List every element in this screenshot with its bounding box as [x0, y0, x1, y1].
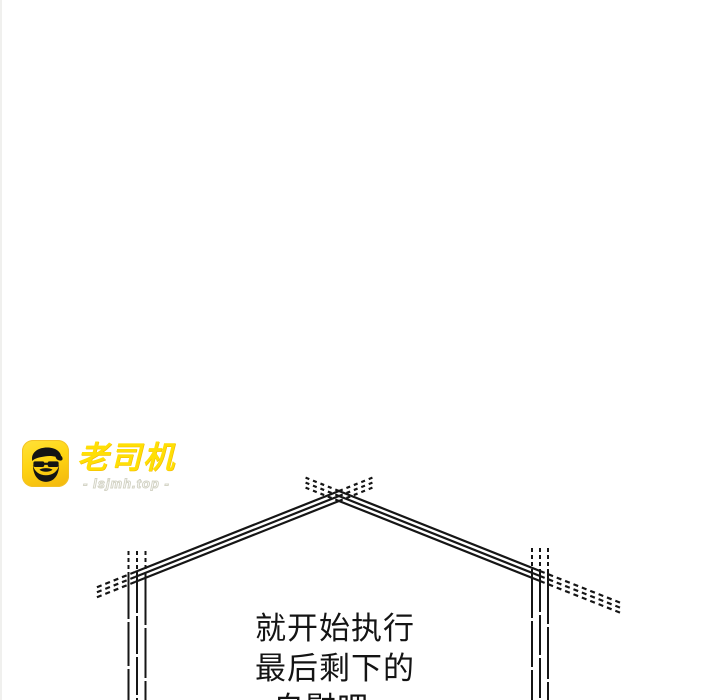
watermark-text: 老司机 - lsjmh.top - — [77, 442, 176, 492]
post-right — [532, 548, 548, 700]
dialogue-line-1: 就开始执行 — [235, 609, 435, 649]
house-sketch — [0, 0, 720, 700]
watermark-brand-text: 老司机 — [77, 442, 176, 474]
comic-page: 老司机 - lsjmh.top - 就开始执行 最后剩下的 自慰吧 — [0, 0, 720, 700]
driver-face-icon — [22, 440, 69, 487]
dialogue-line-2: 最后剩下的 — [235, 649, 435, 689]
watermark-site-text: - lsjmh.top - — [77, 476, 176, 492]
dialogue-text: 就开始执行 最后剩下的 自慰吧 — [235, 609, 435, 700]
watermark: 老司机 - lsjmh.top - — [22, 440, 176, 492]
dialogue-line-3: 自慰吧 — [221, 689, 421, 700]
roof-right-lines — [304, 477, 621, 613]
